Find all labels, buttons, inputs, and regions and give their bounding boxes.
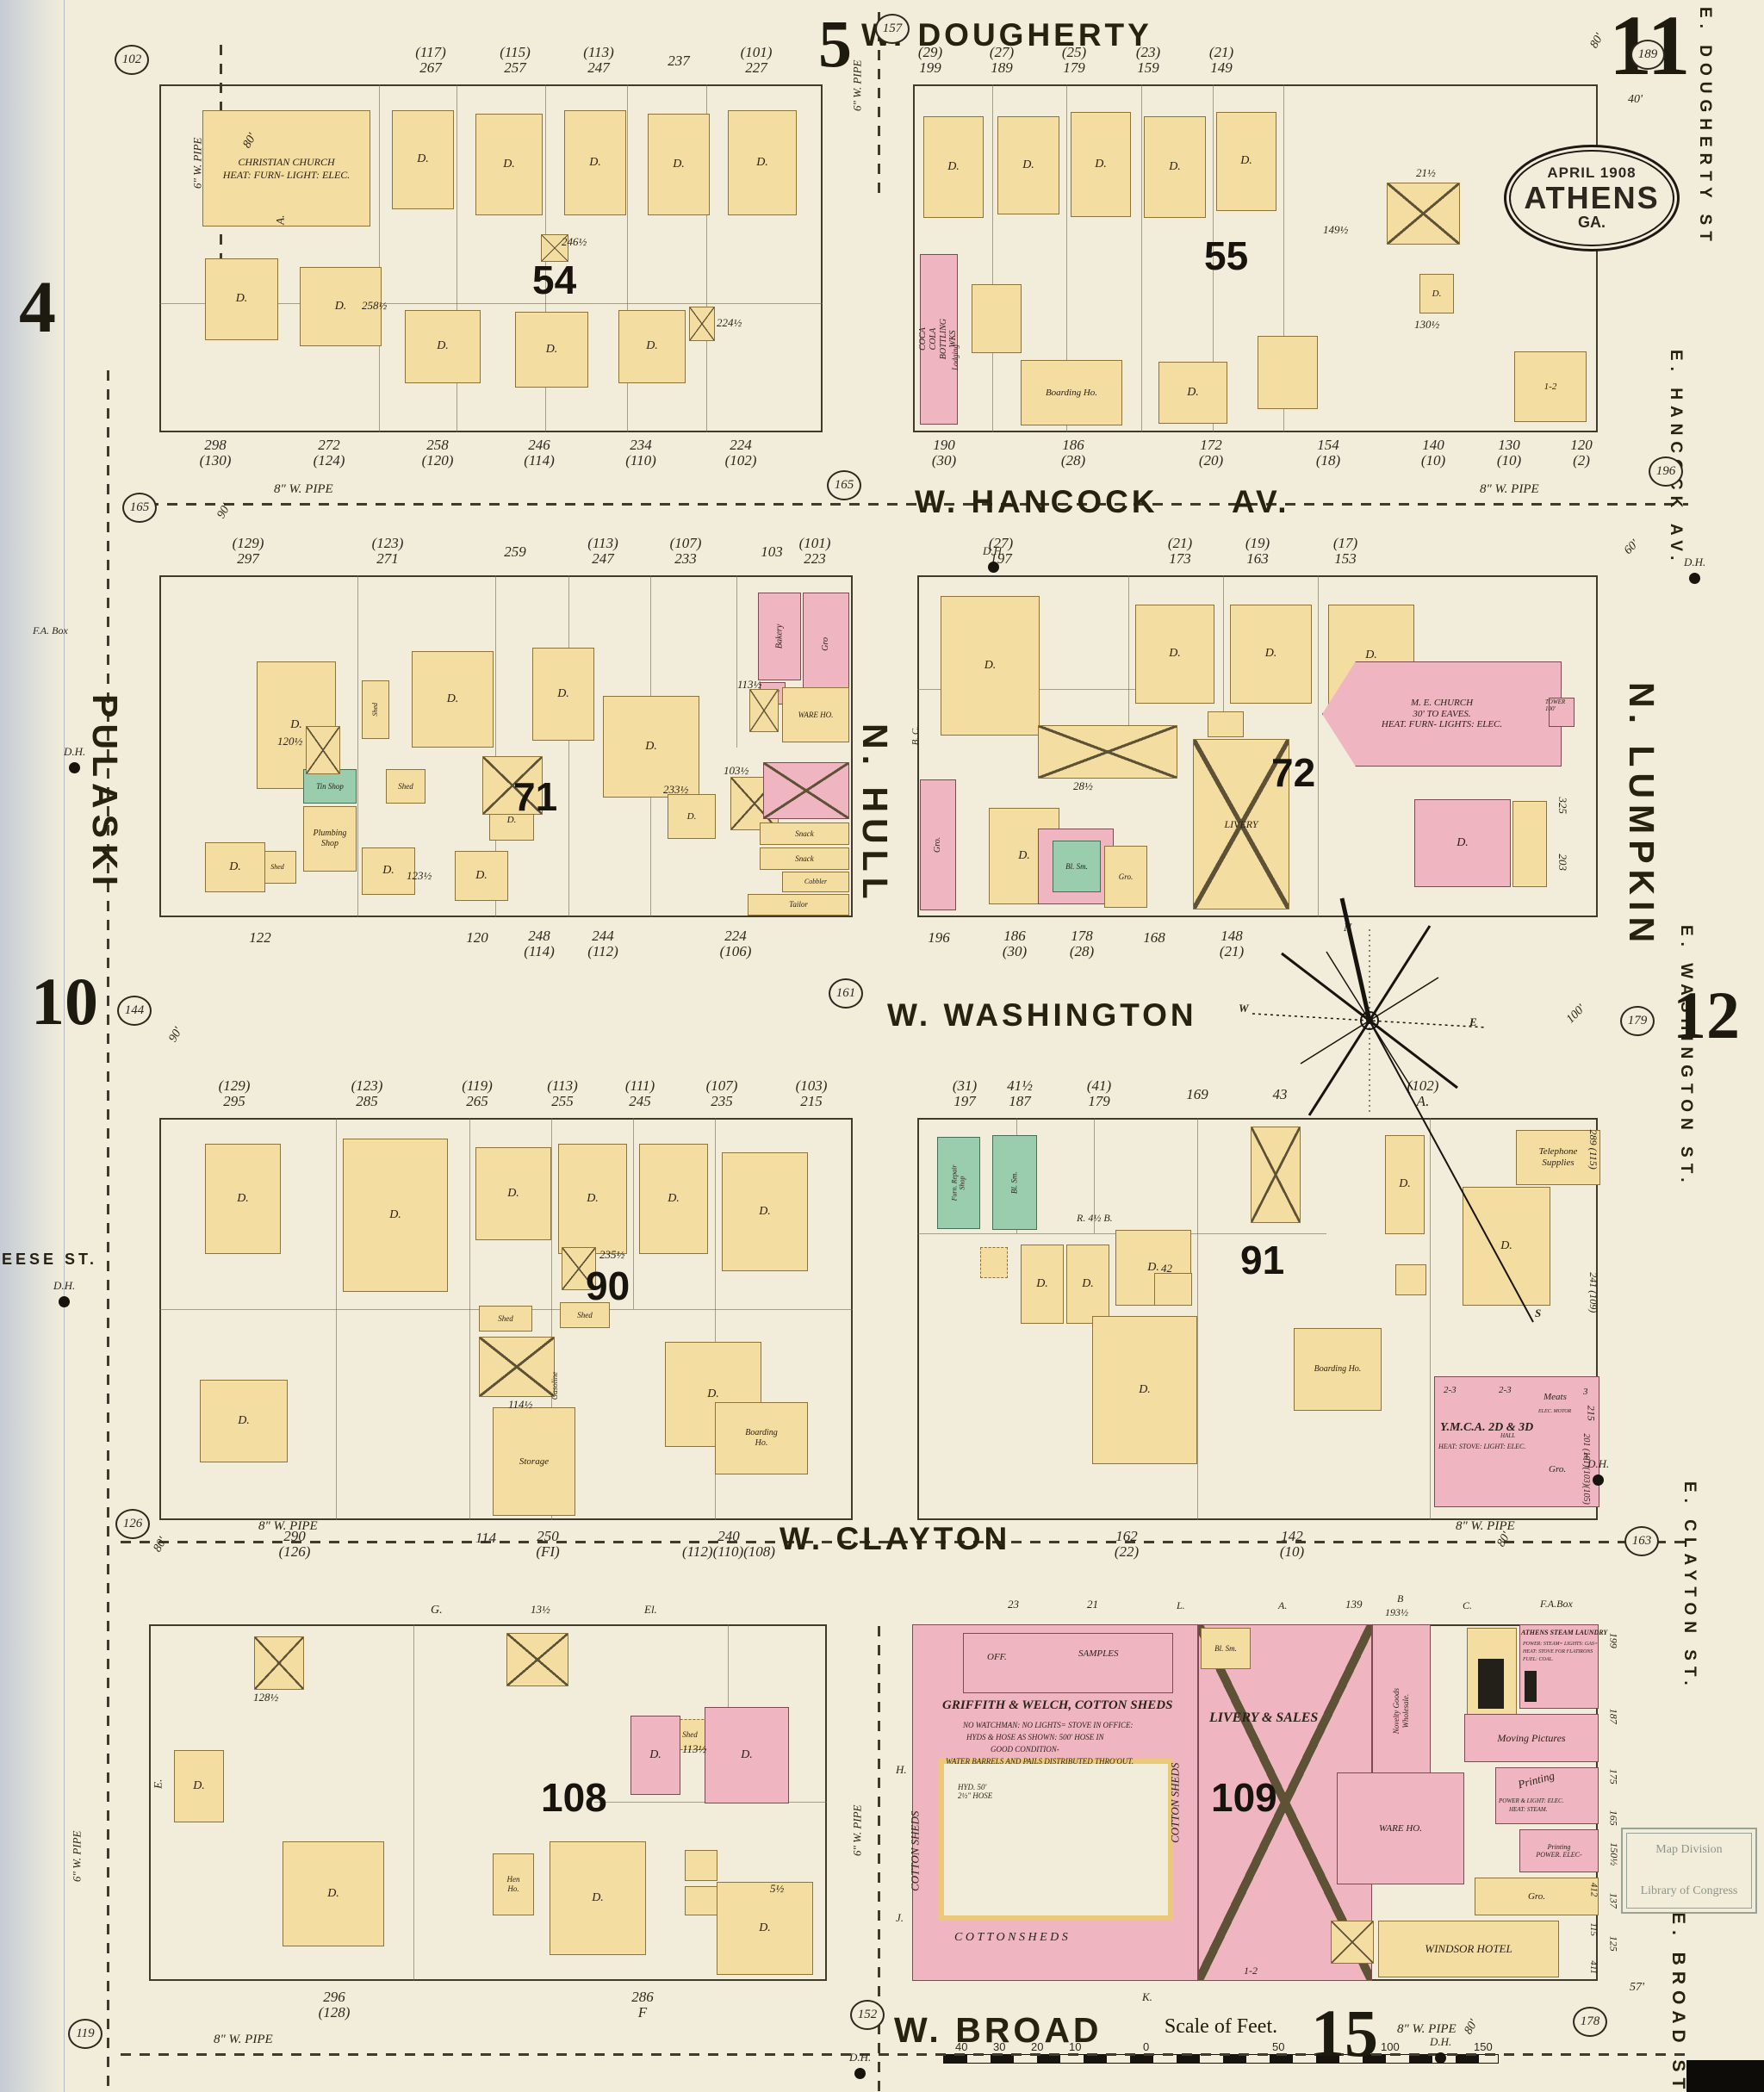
lot-number: 178(28): [1070, 928, 1094, 959]
lot-number: 224(106): [720, 928, 752, 959]
dwelling: D.: [1230, 605, 1312, 704]
lot-number: 248(114): [524, 928, 555, 959]
lot-number-paren: 224: [725, 438, 757, 453]
lot-number: 162(22): [1115, 1529, 1139, 1560]
lot-number-paren: (103): [796, 1078, 828, 1094]
street-label-av: AV.: [1232, 484, 1290, 520]
map-annotation: 130½: [1414, 319, 1439, 332]
lot-number: (41)179: [1087, 1078, 1111, 1109]
double-hydrant-marker: D.H.: [1689, 573, 1700, 584]
map-annotation: F.A.Box: [1540, 1598, 1573, 1610]
hydrant-dot-icon: [988, 562, 999, 573]
lot-number-paren: (101): [799, 536, 831, 551]
lot-number: 244(112): [587, 928, 618, 959]
map-annotation: 1-2: [1244, 1965, 1258, 1977]
map-annotation: 258½: [362, 300, 387, 313]
street-label-e-washington-st: E. WASHINGTON ST.: [1676, 925, 1695, 1189]
map-annotation: 235½: [599, 1249, 624, 1262]
street-label-e-broad-st: E. BROAD ST: [1668, 1912, 1688, 2092]
lot-number-street: (30): [1003, 944, 1027, 959]
lot-number: (129)297: [233, 536, 264, 567]
lot-number-street: 247: [583, 60, 614, 76]
dwelling-label: D.: [759, 1921, 771, 1936]
lot-number: (111)245: [625, 1078, 655, 1109]
dwelling: D.: [1066, 1245, 1109, 1324]
utility-marker-number: 165: [130, 500, 150, 515]
map-annotation: HEAT: STOVE: LIGHT: ELEC.: [1438, 1443, 1525, 1451]
dwelling-label: D.: [1457, 836, 1469, 851]
dwelling: D.: [705, 1707, 789, 1803]
dwelling-label: D.: [645, 740, 657, 754]
map-annotation: 80': [1587, 32, 1606, 52]
dwelling: D.: [205, 258, 278, 340]
dwelling-label: D.: [587, 1192, 599, 1207]
lot-number-street: 173: [1168, 551, 1192, 567]
lot-number-street: 227: [741, 60, 773, 76]
shed: Shed: [386, 769, 425, 804]
dwelling-label: D.: [646, 339, 658, 354]
snack: Snack: [760, 823, 849, 845]
lot-number-paren: (101): [741, 45, 773, 60]
map-annotation: 57': [1630, 1981, 1644, 1995]
dwelling-label: D.: [475, 869, 488, 884]
street-label-w-washington: W. WASHINGTON: [887, 997, 1197, 1034]
shed-label: Shed: [270, 863, 284, 871]
lot-number: 154(18): [1316, 438, 1340, 469]
lot-number-street: (128): [319, 2005, 351, 2021]
lot-number-paren: 296: [319, 1990, 351, 2005]
lot-number-paren: (113): [547, 1078, 578, 1094]
map-annotation: TOWER 100': [1545, 699, 1565, 713]
lot-number: 120(2): [1570, 438, 1593, 469]
plumbing-shop: Plumbing Shop: [303, 806, 357, 872]
lot-number: 130(10): [1497, 438, 1521, 469]
blacksmith-label: Bl. Sm.: [1010, 1171, 1020, 1194]
lot-number-paren: 186: [1003, 928, 1027, 944]
dwelling: D.: [455, 851, 508, 901]
water-pipe: [107, 370, 109, 2089]
lot-number: 41½187: [1007, 1078, 1033, 1109]
map-annotation: Gasoline: [550, 1372, 559, 1400]
furniture-repair-shop: Furn. Repair Shop: [937, 1137, 980, 1229]
map-annotation: H.: [896, 1764, 907, 1777]
lot-number-paren: 246: [524, 438, 555, 453]
hydrant-dot-icon: [1689, 573, 1700, 584]
utility-marker-number: 178: [1581, 2014, 1600, 2029]
lot-number-street: 159: [1136, 60, 1160, 76]
double-hydrant-marker: D.H.: [59, 1296, 70, 1307]
hydrant-dot-icon: [69, 762, 80, 773]
dwelling: D.: [200, 1380, 288, 1462]
map-annotation: WATER BARRELS AND PAILS DISTRIBUTED THRO…: [946, 1757, 1134, 1766]
map-annotation: 90': [166, 1026, 185, 1046]
map-title-date: APRIL 1908: [1547, 165, 1636, 182]
dwelling: D.: [475, 114, 543, 215]
dwelling-label: D.: [1265, 647, 1277, 661]
tin-shop-label: Tin Shop: [316, 782, 344, 791]
map-annotation: HYD. 50' 2½" HOSE: [958, 1783, 992, 1800]
street-label-eese-st: EESE ST.: [2, 1251, 97, 1269]
lot-number: 286F: [631, 1990, 654, 2021]
furniture-repair-shop-label: Furn. Repair Shop: [951, 1165, 967, 1201]
map-annotation: 325: [1556, 798, 1568, 815]
dwelling: D.: [722, 1152, 808, 1271]
lot-number-paren: 196: [928, 930, 950, 946]
dwelling: D.: [668, 794, 716, 839]
lot-number: 246(114): [524, 438, 555, 469]
utility-marker-number: 152: [858, 2008, 878, 2022]
lot-number-street: (102): [725, 453, 757, 469]
dwelling-label: D.: [238, 1414, 250, 1429]
bakery-label: Bakery: [774, 624, 785, 649]
map-annotation: 21½: [1416, 167, 1436, 180]
dwelling: D.: [558, 1144, 627, 1254]
map-annotation: C.: [1463, 1600, 1472, 1611]
map-annotation: 28½: [1073, 780, 1093, 793]
dwelling-label: D.: [589, 156, 601, 171]
grocery-label: Gro: [821, 637, 831, 651]
shed: [479, 1337, 555, 1397]
scan-corner: [1686, 2060, 1764, 2092]
shed: [1208, 711, 1244, 737]
lot-number-paren: 258: [422, 438, 454, 453]
map-annotation: A.: [274, 215, 287, 225]
snack-label: Snack: [795, 854, 814, 864]
moving-pictures: Moving Pictures: [1464, 1714, 1599, 1762]
lot-number-street: (10): [1280, 1544, 1304, 1560]
dwelling-label: D.: [437, 339, 449, 354]
double-hydrant-label: D.H.: [849, 2051, 871, 2064]
hydrant-dot-icon: [1435, 2052, 1446, 2064]
boarding-house-label: Boarding Ho.: [745, 1428, 777, 1449]
map-annotation: 411: [1588, 1960, 1599, 1974]
utility-marker: 157: [875, 14, 910, 44]
map-annotation: 6" W. PIPE: [851, 1805, 864, 1857]
map-annotation: 6" W. PIPE: [191, 138, 204, 189]
utility-marker-number: 102: [122, 53, 142, 67]
dwelling-label: D.: [687, 811, 697, 823]
lot-number-street: 149: [1209, 60, 1233, 76]
lot-number-street: (2): [1570, 453, 1593, 469]
dwelling-label: D.: [229, 860, 241, 875]
map-annotation: Gro.: [1549, 1464, 1566, 1474]
dwelling: D.: [1216, 112, 1276, 211]
stamp-line-1: Map Division: [1655, 1843, 1722, 1857]
shed: [1331, 1921, 1374, 1964]
map-annotation: 289 (115): [1587, 1130, 1598, 1170]
lot-number-street: (112): [587, 944, 618, 959]
shed-label: Shed: [398, 782, 413, 791]
hen-house-label: Hen Ho.: [507, 1875, 520, 1893]
blacksmith: Bl. Sm.: [992, 1135, 1037, 1230]
lot-number-paren: 190: [932, 438, 956, 453]
block-109-number: 109: [1211, 1774, 1277, 1821]
stamp-line-2: Library of Congress: [1641, 1884, 1738, 1898]
lot-number-street: 297: [233, 551, 264, 567]
hen-house: Hen Ho.: [493, 1853, 534, 1915]
dwelling-label: D.: [984, 659, 997, 674]
utility-marker: 196: [1649, 456, 1683, 487]
lot-number-paren: 142: [1280, 1529, 1304, 1544]
utility-marker: 179: [1620, 1006, 1655, 1036]
shed: [1038, 725, 1177, 779]
lot-number-street: 153: [1333, 551, 1357, 567]
map-annotation: 193½: [1385, 1607, 1408, 1618]
lot-number: 298(130): [200, 438, 232, 469]
map-annotation: B. C.: [910, 726, 921, 745]
shed: [306, 726, 340, 774]
dwelling-label: D.: [592, 1891, 604, 1906]
lot-number-street: 163: [1245, 551, 1270, 567]
warehouse: WARE HO.: [782, 687, 849, 742]
dwelling-label: D.: [741, 1748, 753, 1763]
lot-number: (21)149: [1209, 45, 1233, 76]
adjacent-page-number-15: 15: [1311, 2003, 1378, 2064]
shed: [689, 307, 715, 341]
lot-number-paren: (119): [462, 1078, 493, 1094]
double-hydrant-label: D.H.: [1587, 1457, 1609, 1471]
utility-marker-number: 144: [125, 1003, 145, 1018]
lot-number-street: F: [631, 2005, 654, 2021]
lot-number-street: 189: [990, 60, 1014, 76]
double-hydrant-marker: D.H.: [854, 2068, 866, 2079]
map-annotation: G.: [431, 1604, 443, 1617]
lot-number: 272(124): [314, 438, 345, 469]
lot-number: (119)265: [462, 1078, 493, 1109]
map-annotation: HYDS & HOSE AS SHOWN: 500' HOSE IN: [966, 1733, 1104, 1741]
map-title-oval: APRIL 1908 ATHENS GA.: [1504, 145, 1680, 251]
utility-marker-number: 165: [835, 478, 854, 493]
map-annotation: K.: [1142, 1991, 1152, 2004]
dwelling: D.: [1092, 1316, 1197, 1464]
lot-number-paren: (107): [670, 536, 702, 551]
map-annotation: 215: [1585, 1406, 1596, 1421]
lot-number: 169: [1186, 1087, 1208, 1102]
map-annotation: J.: [896, 1912, 904, 1925]
map-annotation: 203: [1556, 854, 1568, 872]
dwelling-label: D.: [557, 687, 569, 702]
lot-number: 120: [466, 930, 488, 946]
utility-marker-number: 189: [1638, 47, 1658, 62]
dwelling-label: D.: [335, 300, 347, 314]
me-church-label: M. E. CHURCH 30' TO EAVES. HEAT. FURN- L…: [1382, 698, 1502, 731]
plumbing-shop-label: Plumbing Shop: [314, 829, 347, 849]
tailor: Tailor: [748, 894, 849, 916]
warehouse: [763, 762, 849, 819]
street-label-w-broad: W. BROAD: [894, 2010, 1102, 2051]
dwelling-label: D.: [673, 158, 685, 172]
blacksmith: Bl. Sm.: [1201, 1628, 1251, 1669]
map-annotation: 13½: [531, 1604, 550, 1617]
map-annotation: HEAT: STEAM.: [1509, 1807, 1547, 1814]
dwelling: D.: [639, 1144, 708, 1254]
lot-number-paren: 122: [249, 930, 271, 946]
adjacent-page-number-4: 4: [19, 274, 56, 340]
dwelling: D.: [532, 648, 594, 741]
map-annotation: 8" W. PIPE: [258, 1519, 318, 1534]
lot-number-street: 265: [462, 1094, 493, 1109]
lot-number: (113)247: [587, 536, 618, 567]
coca-cola-bottling-works: COCA COLA BOTTLING WKS: [920, 254, 958, 425]
lot-number: (101)223: [799, 536, 831, 567]
dwelling: D.: [618, 310, 686, 383]
snack-label: Snack: [795, 829, 814, 839]
double-hydrant-marker: D.H.: [1593, 1474, 1604, 1486]
dwelling-label: D.: [327, 1887, 339, 1902]
map-annotation: 21: [1087, 1598, 1098, 1611]
lot-number: 259: [504, 544, 526, 560]
lot-number-street: 255: [547, 1094, 578, 1109]
double-hydrant-label: D.H.: [53, 1279, 75, 1293]
lot-number: 114: [475, 1530, 496, 1546]
lot-number-paren: (129): [233, 536, 264, 551]
lot-number-street: (28): [1070, 944, 1094, 959]
bakery: Bakery: [758, 593, 801, 680]
lot-number-street: (20): [1199, 453, 1223, 469]
map-annotation: 113½: [682, 1743, 706, 1756]
lot-number: 168: [1143, 930, 1165, 946]
map-annotation: OFF.: [987, 1652, 1007, 1662]
lot-number: (19)163: [1245, 536, 1270, 567]
utility-marker-number: 163: [1632, 1534, 1652, 1549]
lot-number: (117)267: [415, 45, 446, 76]
dwelling-label: D.: [382, 864, 394, 878]
shed: [1387, 183, 1460, 245]
map-annotation: 6" W. PIPE: [851, 60, 864, 112]
utility-marker: 165: [122, 493, 157, 523]
lot-number-street: (10): [1497, 453, 1521, 469]
map-annotation: L.: [1177, 1600, 1185, 1611]
utility-marker: 163: [1624, 1526, 1659, 1556]
double-hydrant-marker: D.H.: [1435, 2052, 1446, 2064]
dwelling: [972, 284, 1022, 353]
lot-number-paren: 172: [1199, 438, 1223, 453]
lot-number: (17)153: [1333, 536, 1357, 567]
lot-number-paren: 186: [1061, 438, 1085, 453]
dwelling: D.: [205, 842, 265, 892]
scale-tick: 50: [1272, 2040, 1284, 2053]
snack: Snack: [760, 847, 849, 870]
lot-number: (101)227: [741, 45, 773, 76]
shed: [980, 1247, 1008, 1278]
double-hydrant-label: D.H.: [1430, 2035, 1451, 2049]
grocery-label: Gro.: [933, 837, 943, 853]
lot-number-paren: (21): [1168, 536, 1192, 551]
lot-number-paren: 103: [761, 544, 783, 560]
lot-number-street: 257: [500, 60, 531, 76]
map-annotation: 139: [1345, 1598, 1363, 1611]
boarding-house: Boarding Ho.: [1294, 1328, 1382, 1411]
dwelling-label: D.: [507, 1187, 519, 1201]
lot-number-paren: (31): [953, 1078, 977, 1094]
lot-number-paren: (17): [1333, 536, 1357, 551]
map-annotation: ATHENS STEAM LAUNDRY: [1521, 1630, 1607, 1637]
map-annotation: GOOD CONDITION-: [991, 1745, 1059, 1754]
map-annotation: 149½: [1323, 224, 1348, 237]
dwelling: D.: [1135, 605, 1214, 704]
dwelling: D.: [1419, 274, 1454, 313]
printing-shop: Printing POWER. ELEC-: [1519, 1829, 1599, 1872]
dwelling-label: D.: [237, 1192, 249, 1207]
map-annotation: SAMPLES: [1078, 1648, 1118, 1659]
grocery-label: Gro.: [1119, 872, 1133, 882]
tailor-label: Tailor: [789, 900, 808, 909]
grocery: Gro.: [920, 779, 956, 910]
lot-number-paren: 168: [1143, 930, 1165, 946]
lot-number-street: (106): [720, 944, 752, 959]
dwelling-label: D.: [447, 692, 459, 707]
lot-number-street: (FI): [536, 1544, 559, 1560]
dwelling-label: D.: [1095, 158, 1107, 172]
utility-marker-number: 157: [883, 22, 903, 36]
map-annotation: GRIFFITH & WELCH, COTTON SHEDS: [942, 1698, 1172, 1713]
lot-number: 258(120): [422, 438, 454, 469]
windsor-hotel: WINDSOR HOTEL: [1378, 1921, 1559, 1977]
dwelling-label: D.: [389, 1208, 401, 1223]
dwelling: D.: [412, 651, 494, 748]
lot-number-paren: 114: [475, 1530, 496, 1546]
map-annotation: 187: [1607, 1709, 1618, 1724]
water-pipe: [129, 503, 1688, 506]
dwelling-label: D.: [1082, 1277, 1094, 1292]
utility-marker: 119: [68, 2019, 102, 2049]
dwelling: D.: [941, 596, 1040, 736]
dwelling: D.: [392, 110, 454, 209]
map-annotation: Meats: [1543, 1392, 1567, 1402]
lot-number-paren: (19): [1245, 536, 1270, 551]
shed: Shed: [362, 680, 389, 739]
dwelling-label: D.: [1187, 386, 1199, 400]
lot-number: (31)197: [953, 1078, 977, 1109]
lot-number-street: (110): [625, 453, 656, 469]
lot-number-street: 245: [625, 1094, 655, 1109]
dwelling-label: D.: [947, 160, 960, 175]
map-annotation: Y.M.C.A. 2D & 3D: [1440, 1421, 1533, 1435]
dwelling: D.: [648, 114, 710, 215]
lot-number-street: 179: [1062, 60, 1086, 76]
lot-number-street: 197: [953, 1094, 977, 1109]
lot-number-paren: 130: [1497, 438, 1521, 453]
dwelling-label: D.: [236, 292, 248, 307]
map-annotation: LIVERY & SALES: [1209, 1710, 1318, 1726]
ymca: [1434, 1376, 1599, 1507]
adjacent-page-number-5: 5: [818, 14, 852, 74]
map-annotation: FUEL: COAL.: [1523, 1657, 1553, 1663]
lot-number-paren: 154: [1316, 438, 1340, 453]
shed: [1154, 1273, 1192, 1306]
map-title-city: ATHENS: [1524, 182, 1659, 214]
dwelling-label: D.: [503, 158, 515, 172]
map-annotation: POWER & LIGHT: ELEC.: [1499, 1798, 1563, 1805]
lot-line: [413, 1624, 414, 1981]
lot-number-paren: (111): [625, 1078, 655, 1094]
street-label-e-dougherty-st: E. DOUGHERTY ST: [1695, 7, 1714, 247]
shed: [685, 1850, 717, 1881]
double-hydrant-label: D.H.: [64, 745, 85, 759]
christian-church-label: CHRISTIAN CHURCH HEAT: FURN- LIGHT: ELEC…: [223, 156, 351, 180]
lot-number: 140(10): [1421, 438, 1445, 469]
utility-marker: 102: [115, 45, 149, 75]
map-annotation: 3: [1583, 1387, 1588, 1397]
map-annotation: Lodging: [951, 345, 960, 370]
boiler: [1525, 1671, 1537, 1702]
street-label-w-clayton: W. CLAYTON: [780, 1521, 1010, 1557]
dwelling-label: D.: [759, 1205, 771, 1220]
tin-shop: Tin Shop: [303, 769, 357, 804]
map-annotation: 8" W. PIPE: [274, 482, 333, 497]
map-annotation: 165: [1607, 1810, 1618, 1826]
lot-number: 196: [928, 930, 950, 946]
